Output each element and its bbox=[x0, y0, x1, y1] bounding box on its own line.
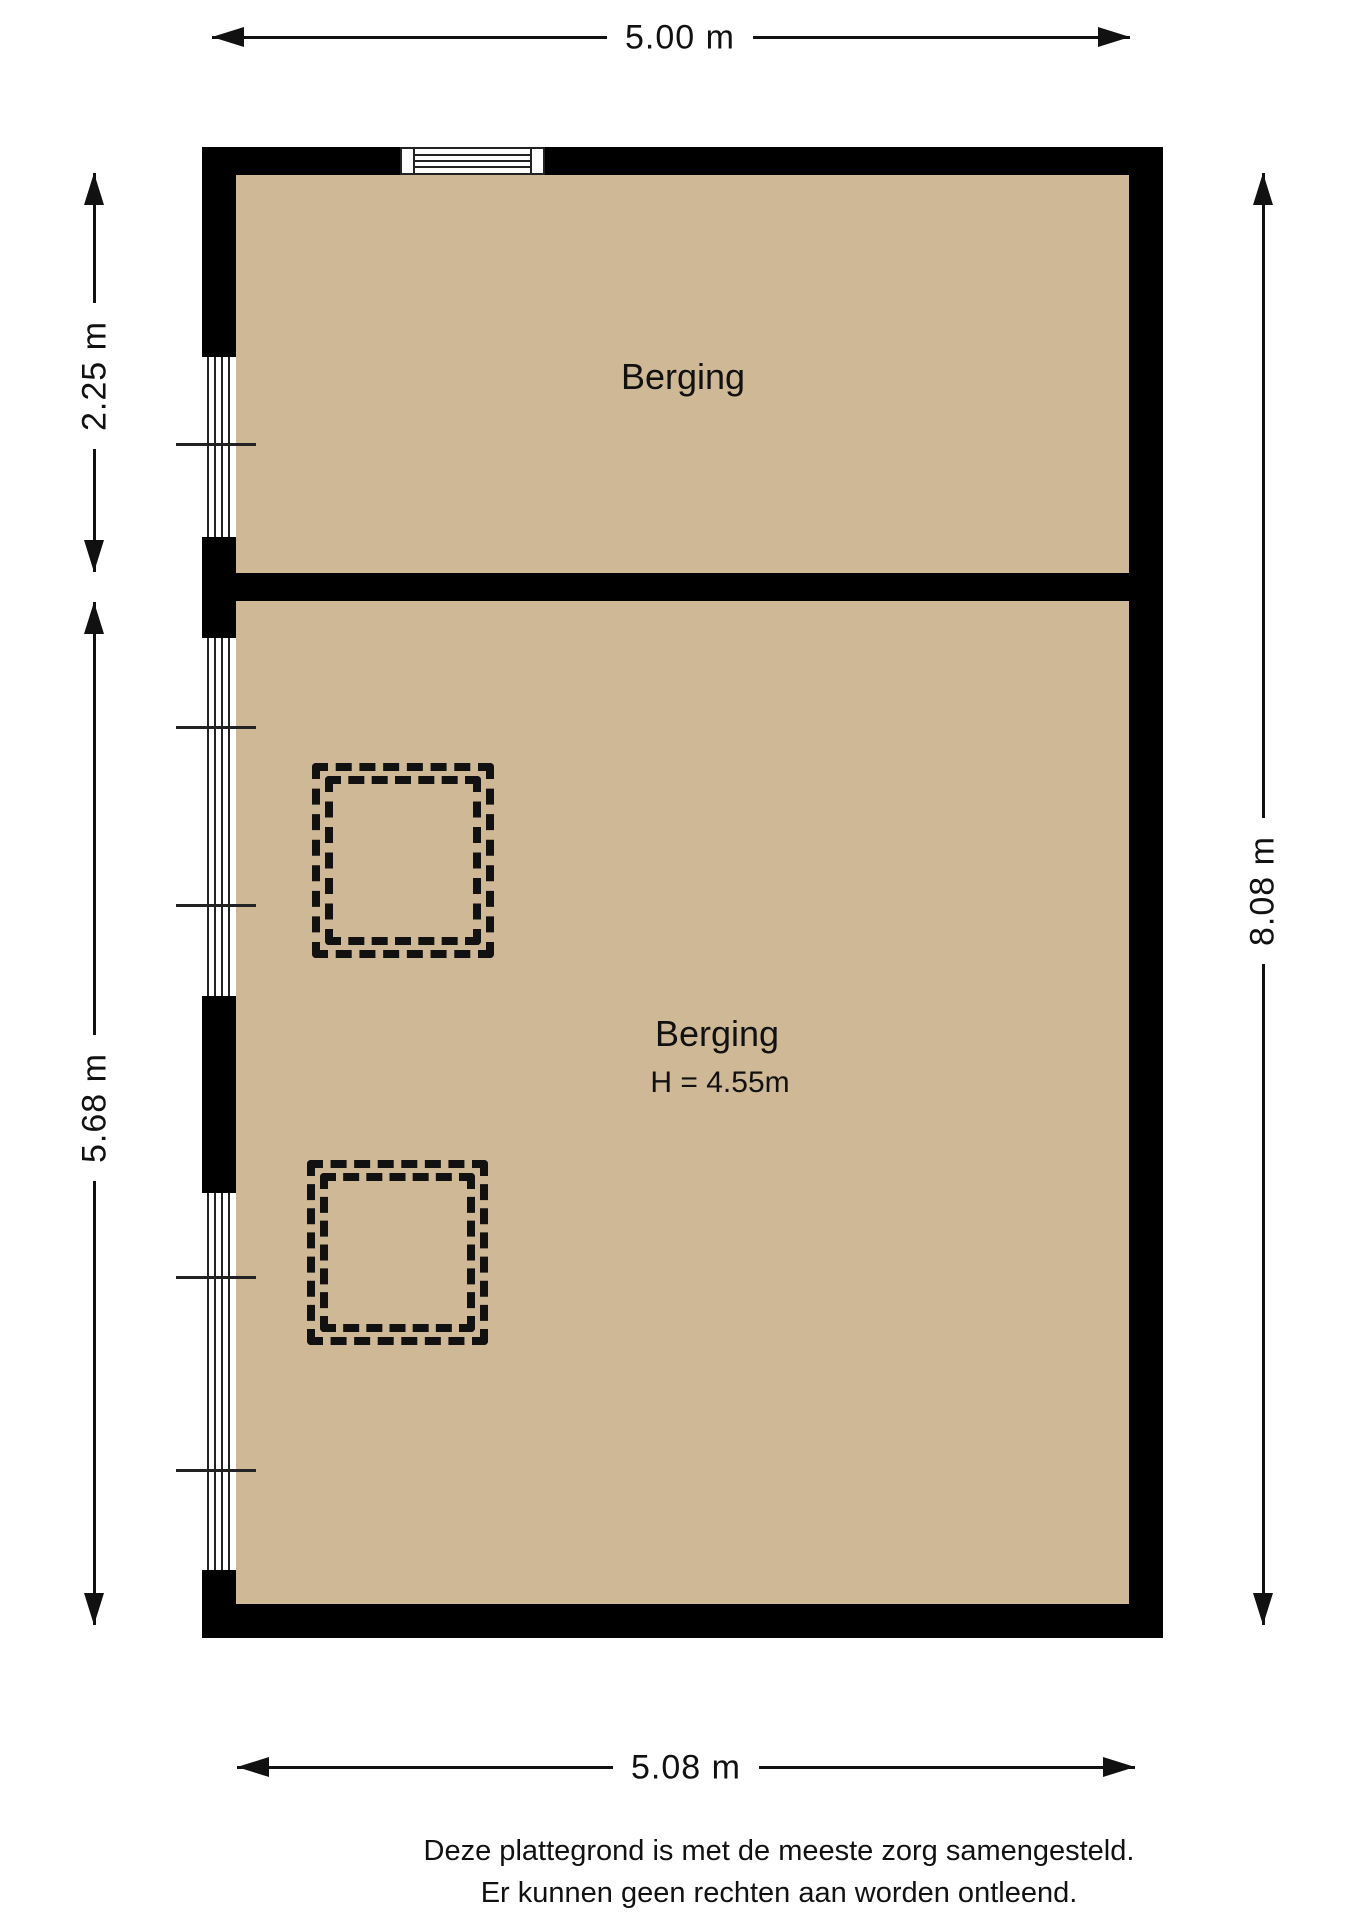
room-height-label: H = 4.55m bbox=[650, 1066, 789, 1100]
dimension-label: 5.08 m bbox=[613, 1747, 759, 1790]
window-tick bbox=[176, 1276, 256, 1279]
window-pane-line bbox=[207, 638, 209, 996]
dim-arrow-up-icon bbox=[84, 173, 104, 205]
wall-left-segment-3 bbox=[202, 996, 236, 1193]
window-pane-line bbox=[214, 638, 216, 996]
dim-arrow-down-icon bbox=[84, 1593, 104, 1625]
wall-left-segment-2 bbox=[202, 537, 236, 638]
dim-arrow-right-icon bbox=[1098, 27, 1130, 47]
roof-opening-inner-line bbox=[325, 776, 481, 945]
dimension-label: 8.08 m bbox=[1242, 818, 1285, 964]
room-label-berging-bottom: Berging bbox=[655, 1013, 779, 1055]
disclaimer-line-2: Er kunnen geen rechten aan worden ontlee… bbox=[424, 1872, 1135, 1914]
window-left-lower-icon bbox=[202, 1193, 236, 1570]
dim-arrow-down-icon bbox=[84, 540, 104, 572]
roof-opening-inner-line bbox=[320, 1173, 475, 1332]
window-pane-line bbox=[221, 1193, 223, 1570]
window-pane-line bbox=[214, 357, 216, 537]
wall-divider bbox=[236, 573, 1129, 601]
floorplan-canvas: 5.00 m 2.25 m 5.68 m 8.08 m bbox=[0, 0, 1358, 1920]
window-left-upper-icon bbox=[202, 357, 236, 537]
window-tick bbox=[176, 726, 256, 729]
window-pane-line bbox=[207, 1193, 209, 1570]
floor-room-bottom bbox=[236, 601, 1129, 1604]
window-pane-line bbox=[214, 1193, 216, 1570]
dimension-label: 5.00 m bbox=[607, 17, 753, 60]
dim-arrow-right-icon bbox=[1103, 1757, 1135, 1777]
wall-left-segment-1 bbox=[202, 147, 236, 357]
window-pane-line bbox=[207, 357, 209, 537]
wall-top-right-segment bbox=[545, 147, 1163, 175]
dimension-label: 5.68 m bbox=[74, 1035, 117, 1181]
dim-arrow-up-icon bbox=[84, 602, 104, 634]
window-pane-line bbox=[415, 166, 530, 168]
window-pane-line bbox=[221, 357, 223, 537]
dim-arrow-up-icon bbox=[1253, 173, 1273, 205]
disclaimer-line-1: Deze plattegrond is met de meeste zorg s… bbox=[424, 1830, 1135, 1872]
disclaimer-text: Deze plattegrond is met de meeste zorg s… bbox=[424, 1830, 1135, 1914]
dim-arrow-left-icon bbox=[237, 1757, 269, 1777]
window-pane-line bbox=[415, 154, 530, 156]
window-pane-line bbox=[228, 357, 230, 537]
window-tick bbox=[176, 443, 256, 446]
dim-arrow-down-icon bbox=[1253, 1593, 1273, 1625]
wall-bottom bbox=[202, 1604, 1163, 1638]
dimension-label: 2.25 m bbox=[74, 303, 117, 449]
window-pane-line bbox=[221, 638, 223, 996]
window-left-middle-icon bbox=[202, 638, 236, 996]
window-top-icon bbox=[400, 147, 545, 175]
roof-opening-upper-icon bbox=[312, 763, 494, 958]
window-tick bbox=[176, 904, 256, 907]
room-label-berging-top: Berging bbox=[621, 356, 745, 398]
wall-left-segment-4 bbox=[202, 1570, 236, 1638]
wall-right bbox=[1129, 147, 1163, 1638]
roof-opening-lower-icon bbox=[307, 1160, 488, 1345]
window-tick bbox=[176, 1469, 256, 1472]
window-pane-line bbox=[415, 160, 530, 162]
window-pane-line bbox=[228, 1193, 230, 1570]
dim-arrow-left-icon bbox=[212, 27, 244, 47]
window-pane-line bbox=[228, 638, 230, 996]
window-pane-line bbox=[530, 149, 532, 173]
